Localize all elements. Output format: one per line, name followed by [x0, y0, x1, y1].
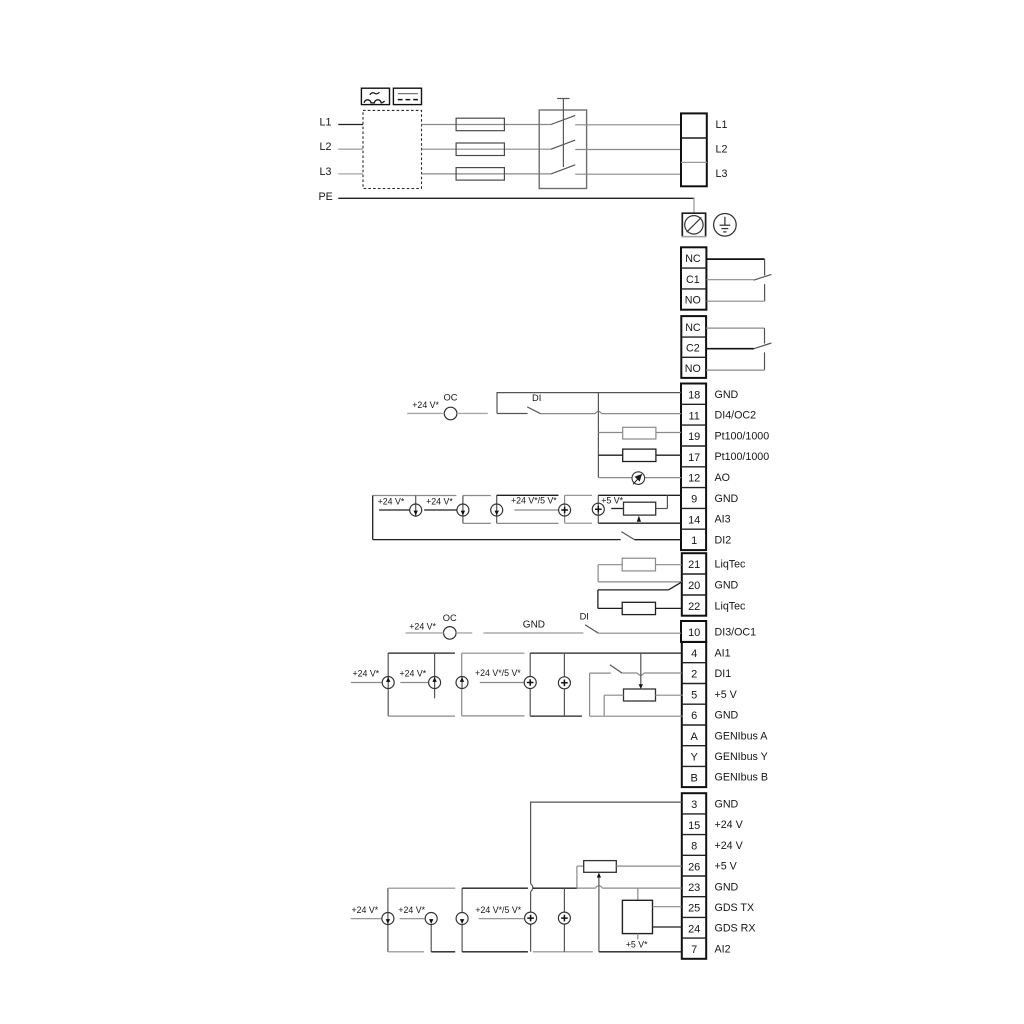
svg-text:19: 19 [688, 431, 700, 443]
svg-text:GDS RX: GDS RX [715, 923, 756, 935]
svg-text:L2: L2 [320, 141, 332, 153]
svg-text:2: 2 [691, 669, 697, 681]
svg-text:+24 V*: +24 V* [412, 400, 439, 410]
svg-text:DI: DI [580, 612, 589, 622]
svg-text:18: 18 [688, 390, 700, 402]
svg-text:+24 V*: +24 V* [426, 496, 453, 506]
svg-text:5: 5 [691, 690, 697, 702]
svg-text:20: 20 [688, 580, 700, 592]
svg-text:DI3/OC1: DI3/OC1 [715, 626, 757, 638]
svg-text:GENIbus A: GENIbus A [715, 730, 769, 742]
svg-text:+24 V*/5 V*: +24 V*/5 V* [511, 496, 557, 506]
svg-text:DI1: DI1 [715, 668, 732, 680]
svg-text:L1: L1 [320, 116, 332, 128]
svg-text:GDS TX: GDS TX [715, 902, 755, 914]
svg-text:23: 23 [688, 882, 700, 894]
svg-text:11: 11 [688, 410, 699, 422]
svg-text:L3: L3 [716, 168, 728, 180]
svg-text:22: 22 [688, 601, 700, 613]
svg-text:25: 25 [688, 903, 700, 915]
svg-text:10: 10 [688, 627, 700, 639]
svg-text:21: 21 [688, 559, 700, 571]
svg-text:GND: GND [715, 493, 739, 505]
svg-text:14: 14 [688, 514, 700, 526]
svg-text:C2: C2 [686, 342, 700, 354]
svg-text:+5 V*: +5 V* [626, 939, 648, 949]
svg-text:DI4/OC2: DI4/OC2 [715, 410, 757, 422]
svg-text:AI3: AI3 [715, 514, 731, 526]
svg-text:6: 6 [691, 710, 697, 722]
svg-text:GND: GND [715, 881, 739, 893]
svg-text:AI2: AI2 [715, 943, 731, 955]
svg-text:+24 V*/5 V*: +24 V*/5 V* [475, 668, 521, 678]
svg-text:NC: NC [685, 322, 701, 334]
svg-text:Pt100/1000: Pt100/1000 [715, 430, 770, 442]
svg-text:+24 V*/5 V*: +24 V*/5 V* [475, 905, 521, 915]
svg-text:+5 V: +5 V [715, 689, 738, 701]
svg-text:1: 1 [691, 535, 697, 547]
svg-text:GND: GND [523, 620, 545, 631]
svg-text:+5 V*: +5 V* [601, 496, 623, 506]
svg-text:B: B [691, 772, 698, 784]
svg-text:GENIbus B: GENIbus B [715, 772, 768, 784]
svg-text:GND: GND [715, 580, 739, 592]
svg-text:GND: GND [715, 799, 739, 811]
svg-text:17: 17 [688, 452, 700, 464]
svg-text:+24 V*: +24 V* [353, 668, 380, 678]
svg-text:AI1: AI1 [715, 647, 731, 659]
svg-text:GND: GND [715, 389, 739, 401]
svg-text:+24 V: +24 V [715, 840, 744, 852]
svg-text:GENIbus Y: GENIbus Y [715, 751, 768, 763]
svg-text:3: 3 [691, 799, 697, 811]
svg-text:DI: DI [532, 393, 541, 403]
svg-text:+5 V: +5 V [715, 861, 738, 873]
svg-text:GND: GND [715, 710, 739, 722]
svg-text:+24 V*: +24 V* [409, 622, 436, 632]
svg-text:L2: L2 [716, 143, 728, 155]
svg-text:7: 7 [691, 944, 697, 956]
svg-text:Pt100/1000: Pt100/1000 [715, 451, 770, 463]
svg-text:AO: AO [715, 472, 730, 484]
svg-text:NC: NC [685, 253, 701, 265]
svg-text:C1: C1 [686, 274, 700, 286]
svg-text:24: 24 [688, 923, 700, 935]
svg-text:15: 15 [688, 820, 700, 832]
svg-text:NO: NO [685, 295, 701, 307]
svg-text:LiqTec: LiqTec [715, 600, 747, 612]
svg-text:NO: NO [685, 363, 701, 375]
svg-text:4: 4 [691, 648, 697, 660]
svg-text:8: 8 [691, 841, 697, 853]
svg-text:26: 26 [688, 861, 700, 873]
svg-text:+24 V: +24 V [715, 819, 744, 831]
svg-text:OC: OC [443, 613, 457, 623]
svg-text:9: 9 [691, 494, 697, 506]
svg-text:+24 V*: +24 V* [398, 905, 425, 915]
svg-text:+24 V*: +24 V* [352, 905, 379, 915]
svg-text:A: A [691, 731, 699, 743]
svg-text:L1: L1 [716, 119, 728, 131]
svg-text:Y: Y [691, 752, 699, 764]
svg-text:+24 V*: +24 V* [400, 668, 427, 678]
svg-text:+24 V*: +24 V* [378, 496, 405, 506]
svg-text:DI2: DI2 [715, 534, 732, 546]
svg-text:PE: PE [319, 191, 333, 203]
svg-text:L3: L3 [320, 166, 332, 178]
svg-text:LiqTec: LiqTec [715, 559, 747, 571]
svg-text:12: 12 [688, 473, 700, 485]
svg-text:OC: OC [444, 392, 458, 402]
